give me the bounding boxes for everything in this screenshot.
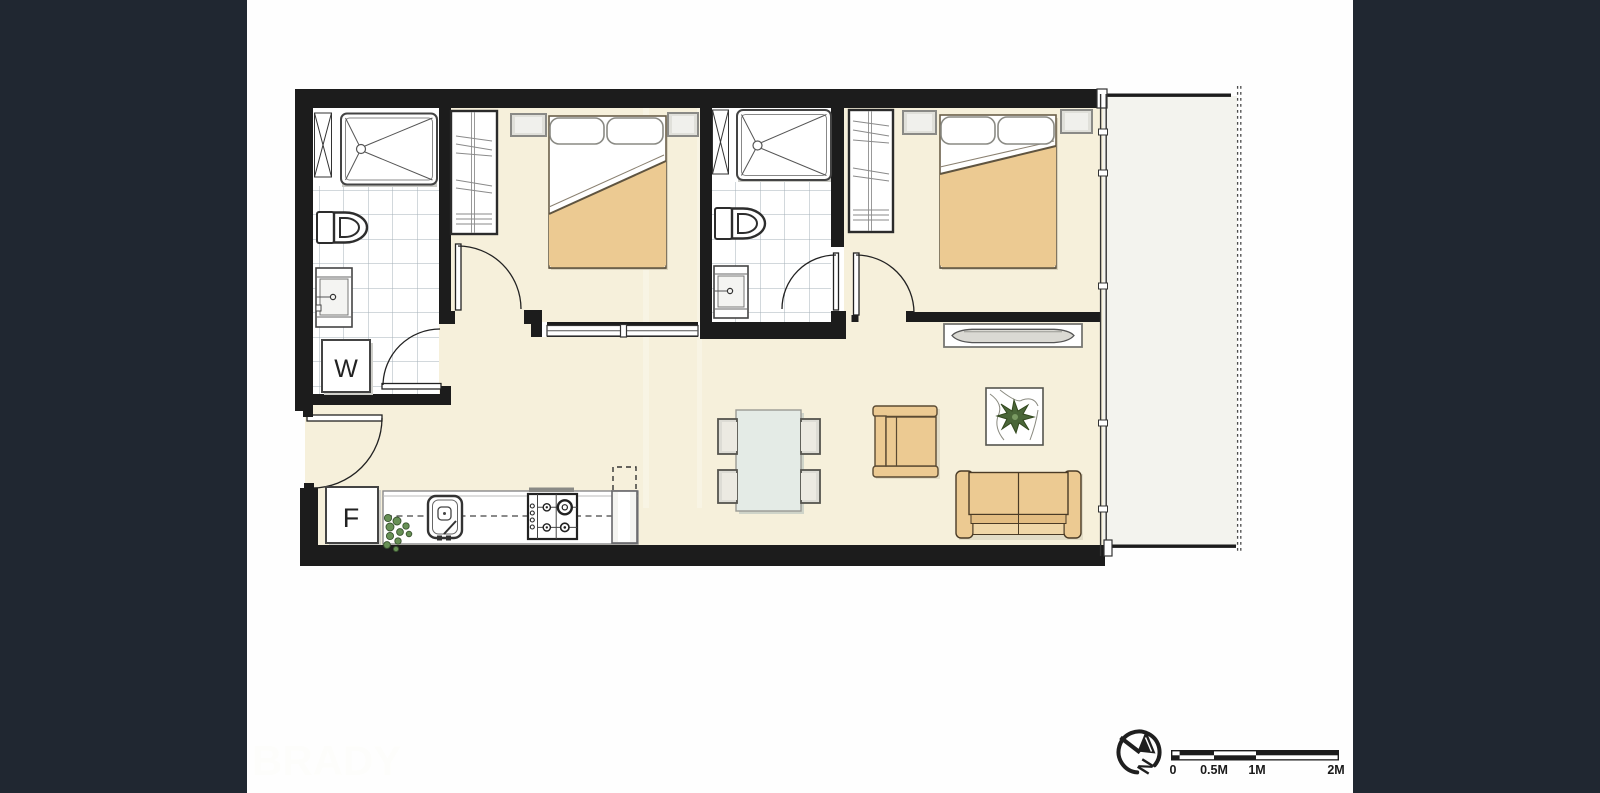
svg-text:1M: 1M <box>1248 763 1265 777</box>
svg-text:BRADY: BRADY <box>252 737 401 784</box>
svg-text:0: 0 <box>1170 763 1177 777</box>
svg-text:0.5M: 0.5M <box>1200 763 1228 777</box>
svg-text:W: W <box>334 355 358 383</box>
svg-text:2M: 2M <box>1327 763 1344 777</box>
svg-text:F: F <box>343 503 360 533</box>
